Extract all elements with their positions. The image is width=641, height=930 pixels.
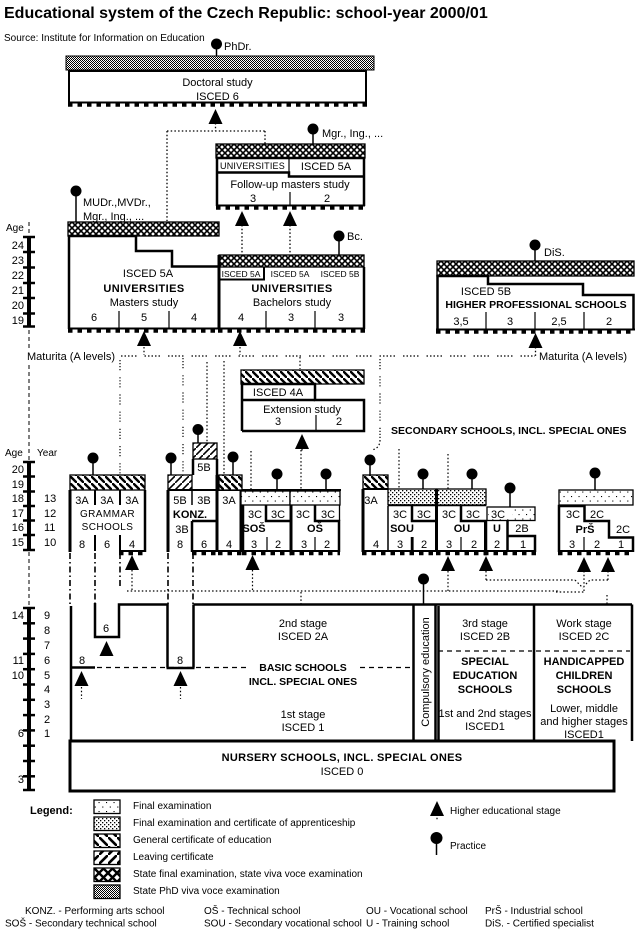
svg-text:6: 6 — [103, 623, 109, 635]
svg-text:4: 4 — [238, 312, 244, 324]
svg-text:3: 3 — [275, 416, 281, 428]
svg-text:5B: 5B — [173, 495, 186, 507]
svg-text:NURSERY SCHOOLS, INCL. SPECIAL: NURSERY SCHOOLS, INCL. SPECIAL ONES — [222, 752, 463, 764]
svg-text:8: 8 — [79, 539, 85, 551]
svg-text:SPECIAL: SPECIAL — [461, 656, 509, 668]
svg-text:15: 15 — [12, 537, 24, 549]
svg-text:4: 4 — [129, 539, 135, 551]
svg-text:2: 2 — [471, 539, 477, 551]
svg-text:Legend:: Legend: — [30, 805, 73, 817]
svg-text:3,5: 3,5 — [453, 316, 468, 328]
svg-text:2: 2 — [275, 539, 281, 551]
svg-text:Practice: Practice — [450, 841, 487, 852]
svg-text:8: 8 — [44, 625, 50, 637]
svg-text:ISCED 5B: ISCED 5B — [461, 286, 511, 298]
svg-text:1st stage: 1st stage — [281, 709, 326, 721]
svg-text:Compulsory education: Compulsory education — [420, 617, 432, 726]
svg-text:3: 3 — [288, 312, 294, 324]
svg-text:ISCED 2A: ISCED 2A — [278, 631, 329, 643]
svg-text:2C: 2C — [616, 524, 630, 536]
svg-text:20: 20 — [12, 300, 24, 312]
svg-text:3A: 3A — [364, 495, 378, 507]
svg-text:Maturita (A levels): Maturita (A levels) — [539, 351, 627, 363]
svg-text:SCHOOLS: SCHOOLS — [458, 684, 512, 696]
svg-text:SOŠ: SOŠ — [242, 522, 265, 535]
svg-text:Higher educational stage: Higher educational stage — [450, 806, 561, 817]
svg-text:ISCED 5B: ISCED 5B — [321, 269, 360, 279]
svg-text:3C: 3C — [466, 509, 480, 521]
svg-text:1: 1 — [44, 728, 50, 740]
svg-text:DiS.: DiS. — [544, 247, 565, 259]
svg-text:SCHOOLS: SCHOOLS — [557, 684, 611, 696]
svg-text:10: 10 — [44, 537, 56, 549]
svg-text:ISCED 2C: ISCED 2C — [559, 631, 610, 643]
svg-text:ISCED 1: ISCED 1 — [282, 722, 325, 734]
svg-text:KONZ. - Performing arts school: KONZ. - Performing arts school — [25, 906, 164, 917]
svg-text:Mgr., Ing., ...: Mgr., Ing., ... — [322, 128, 383, 140]
svg-text:7: 7 — [44, 640, 50, 652]
svg-text:17: 17 — [12, 508, 24, 520]
svg-text:HIGHER PROFESSIONAL SCHOOLS: HIGHER PROFESSIONAL SCHOOLS — [445, 299, 626, 311]
svg-text:HANDICAPPED: HANDICAPPED — [544, 656, 625, 668]
svg-text:2C: 2C — [590, 509, 604, 521]
svg-text:3rd stage: 3rd stage — [462, 618, 508, 630]
svg-text:U: U — [493, 523, 501, 535]
svg-text:22: 22 — [12, 270, 24, 282]
svg-text:16: 16 — [12, 522, 24, 534]
svg-text:3: 3 — [44, 699, 50, 711]
svg-text:5B: 5B — [197, 462, 210, 474]
svg-text:3C: 3C — [442, 509, 456, 521]
svg-text:18: 18 — [12, 493, 24, 505]
svg-text:14: 14 — [12, 610, 24, 622]
svg-text:State PhD viva voce examinatio: State PhD viva voce examination — [133, 886, 280, 897]
svg-text:3: 3 — [18, 774, 24, 786]
svg-text:UNIVERSITIES: UNIVERSITIES — [251, 283, 332, 295]
svg-text:Follow-up masters study: Follow-up masters study — [230, 179, 350, 191]
svg-text:13: 13 — [44, 493, 56, 505]
svg-text:State final examination, state: State final examination, state viva voce… — [133, 869, 363, 880]
svg-text:ISCED 2B: ISCED 2B — [460, 631, 510, 643]
svg-text:Final examination: Final examination — [133, 801, 211, 812]
svg-text:4: 4 — [226, 539, 232, 551]
svg-text:2: 2 — [44, 714, 50, 726]
svg-text:3A: 3A — [222, 495, 236, 507]
svg-text:Leaving certificate: Leaving certificate — [133, 852, 214, 863]
svg-text:3C: 3C — [393, 509, 407, 521]
svg-text:5: 5 — [44, 670, 50, 682]
svg-text:MUDr.,MVDr.,: MUDr.,MVDr., — [83, 197, 151, 209]
svg-text:Bachelors study: Bachelors study — [253, 297, 332, 309]
svg-text:2: 2 — [494, 539, 500, 551]
svg-text:3B: 3B — [175, 524, 188, 536]
svg-text:EDUCATION: EDUCATION — [453, 670, 518, 682]
svg-text:OŠ: OŠ — [307, 522, 323, 535]
svg-text:PhDr.: PhDr. — [224, 41, 252, 53]
svg-text:20: 20 — [12, 464, 24, 476]
svg-text:10: 10 — [12, 670, 24, 682]
svg-text:SOU - Secondary vocational sch: SOU - Secondary vocational school — [204, 919, 362, 930]
svg-text:Source: Institute for Informat: Source: Institute for Information on Edu… — [4, 33, 205, 44]
svg-text:OŠ - Technical school: OŠ - Technical school — [204, 904, 301, 917]
svg-text:2: 2 — [594, 539, 600, 551]
svg-text:3A: 3A — [75, 495, 89, 507]
svg-text:5: 5 — [141, 312, 147, 324]
svg-text:3: 3 — [338, 312, 344, 324]
svg-text:1st and 2nd stages: 1st and 2nd stages — [439, 708, 532, 720]
svg-text:4: 4 — [373, 539, 379, 551]
svg-text:ISCED 5A: ISCED 5A — [301, 161, 352, 173]
svg-text:OU - Vocational school: OU - Vocational school — [366, 906, 468, 917]
svg-text:2,5: 2,5 — [551, 316, 566, 328]
svg-text:SECONDARY SCHOOLS, INCL. SPECI: SECONDARY SCHOOLS, INCL. SPECIAL ONES — [391, 425, 627, 437]
svg-text:2: 2 — [336, 416, 342, 428]
svg-text:11: 11 — [44, 522, 55, 534]
svg-text:ISCED 5A: ISCED 5A — [123, 268, 174, 280]
svg-text:SOU: SOU — [390, 523, 414, 535]
svg-text:ISCED 5A: ISCED 5A — [271, 269, 310, 279]
svg-text:BASIC SCHOOLS: BASIC SCHOOLS — [259, 662, 347, 674]
svg-text:Mgr., Ing., ...: Mgr., Ing., ... — [83, 211, 144, 223]
svg-text:12: 12 — [44, 508, 56, 520]
svg-text:Masters study: Masters study — [110, 297, 179, 309]
svg-text:SCHOOLS: SCHOOLS — [82, 522, 134, 533]
svg-text:ISCED 0: ISCED 0 — [321, 766, 364, 778]
svg-text:Bc.: Bc. — [347, 231, 363, 243]
svg-text:2: 2 — [606, 316, 612, 328]
svg-text:19: 19 — [12, 315, 24, 327]
svg-text:ISCED1: ISCED1 — [465, 721, 505, 733]
svg-text:Age: Age — [5, 448, 23, 459]
svg-text:8: 8 — [177, 539, 183, 551]
svg-text:Extension study: Extension study — [263, 404, 341, 416]
svg-text:Lower, middle: Lower, middle — [550, 703, 618, 715]
svg-text:2nd stage: 2nd stage — [279, 618, 327, 630]
svg-text:3C: 3C — [296, 509, 310, 521]
svg-text:3: 3 — [507, 316, 513, 328]
svg-text:8: 8 — [79, 655, 85, 667]
svg-text:23: 23 — [12, 255, 24, 267]
svg-text:19: 19 — [12, 479, 24, 491]
svg-text:General certificate of educati: General certificate of education — [133, 835, 271, 846]
svg-text:ISCED 5A: ISCED 5A — [222, 269, 261, 279]
svg-text:2: 2 — [324, 193, 330, 205]
svg-text:SOŠ - Secondary technical scho: SOŠ - Secondary technical school — [5, 917, 157, 930]
svg-text:3B: 3B — [197, 495, 210, 507]
svg-text:6: 6 — [91, 312, 97, 324]
svg-text:3C: 3C — [271, 509, 285, 521]
svg-text:UNIVERSITIES: UNIVERSITIES — [220, 161, 285, 171]
svg-text:ISCED 4A: ISCED 4A — [253, 387, 304, 399]
svg-text:ISCED1: ISCED1 — [564, 729, 604, 741]
svg-text:3: 3 — [250, 193, 256, 205]
svg-text:3: 3 — [251, 539, 257, 551]
svg-text:and higher stages: and higher stages — [540, 716, 628, 728]
svg-text:1: 1 — [618, 539, 624, 551]
svg-text:3C: 3C — [248, 509, 262, 521]
svg-text:3C: 3C — [417, 509, 431, 521]
svg-text:CHILDREN: CHILDREN — [556, 670, 613, 682]
svg-text:UNIVERSITIES: UNIVERSITIES — [103, 283, 184, 295]
svg-text:Work stage: Work stage — [556, 618, 611, 630]
svg-text:KONZ.: KONZ. — [173, 509, 207, 521]
svg-text:Maturita (A levels): Maturita (A levels) — [27, 351, 115, 363]
svg-text:6: 6 — [104, 539, 110, 551]
svg-text:3: 3 — [446, 539, 452, 551]
svg-text:3A: 3A — [100, 495, 114, 507]
svg-text:OU: OU — [454, 523, 471, 535]
svg-text:21: 21 — [12, 285, 24, 297]
svg-text:Age: Age — [6, 223, 24, 234]
svg-text:3A: 3A — [125, 495, 139, 507]
svg-text:3C: 3C — [566, 509, 580, 521]
svg-text:1: 1 — [520, 539, 526, 551]
svg-text:2B: 2B — [515, 523, 528, 535]
svg-text:4: 4 — [44, 684, 50, 696]
svg-text:3C: 3C — [491, 509, 505, 521]
svg-text:PrŠ: PrŠ — [576, 523, 595, 536]
svg-text:Final examination and certific: Final examination and certificate of app… — [133, 818, 356, 829]
svg-text:3: 3 — [397, 539, 403, 551]
svg-text:6: 6 — [201, 539, 207, 551]
svg-text:Doctoral study: Doctoral study — [182, 77, 253, 89]
svg-text:Year: Year — [37, 448, 58, 459]
svg-text:PrŠ - Industrial school: PrŠ - Industrial school — [485, 904, 583, 917]
svg-text:2: 2 — [324, 539, 330, 551]
svg-text:3C: 3C — [321, 509, 335, 521]
svg-text:24: 24 — [12, 240, 24, 252]
svg-text:6: 6 — [44, 655, 50, 667]
svg-text:11: 11 — [13, 655, 24, 667]
svg-text:6: 6 — [18, 728, 24, 740]
svg-text:2: 2 — [421, 539, 427, 551]
svg-text:INCL. SPECIAL ONES: INCL. SPECIAL ONES — [249, 676, 357, 688]
svg-text:8: 8 — [177, 655, 183, 667]
svg-text:ISCED 6: ISCED 6 — [196, 91, 239, 103]
svg-text:3: 3 — [569, 539, 575, 551]
svg-text:GRAMMAR: GRAMMAR — [80, 509, 135, 520]
svg-text:DiS. - Certified specialist: DiS. - Certified specialist — [485, 919, 594, 930]
svg-text:Educational system of the Czec: Educational system of the Czech Republic… — [4, 5, 488, 22]
svg-text:3: 3 — [301, 539, 307, 551]
svg-text:U - Training school: U - Training school — [366, 919, 449, 930]
svg-text:9: 9 — [44, 610, 50, 622]
svg-text:4: 4 — [191, 312, 197, 324]
